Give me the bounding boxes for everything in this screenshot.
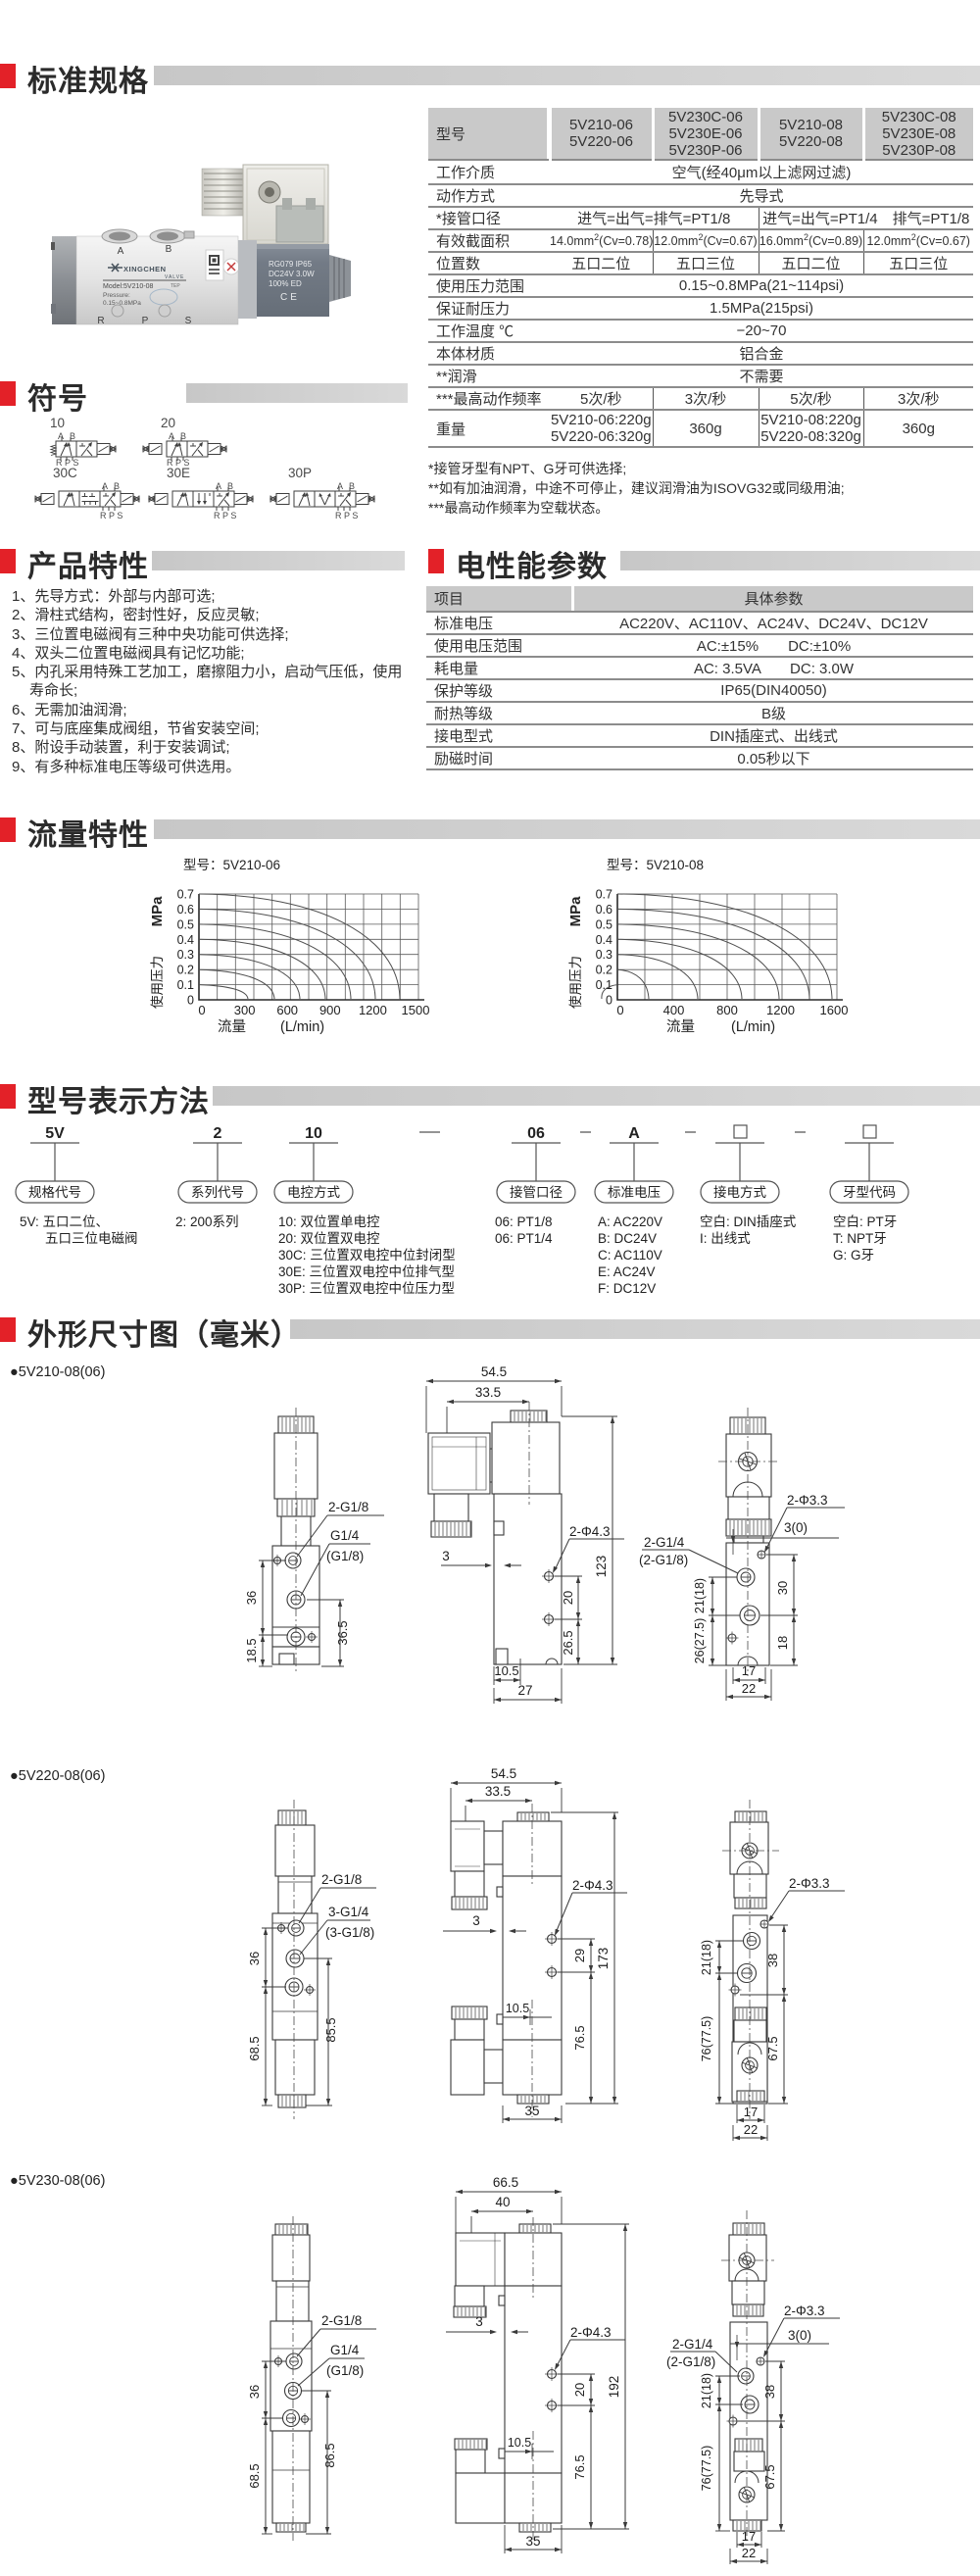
svg-text:22: 22	[742, 2546, 756, 2560]
svg-text:A: A	[58, 431, 64, 441]
svg-text:3: 3	[475, 2314, 483, 2329]
svg-text:1500: 1500	[402, 1003, 430, 1017]
svg-text:A: A	[216, 481, 221, 491]
svg-text:123: 123	[594, 1556, 609, 1578]
svg-text:300: 300	[234, 1003, 256, 1017]
svg-text:21(18): 21(18)	[693, 1578, 707, 1613]
svg-text:29: 29	[572, 1949, 587, 1962]
svg-text:规格代号: 规格代号	[28, 1185, 81, 1200]
svg-text:0: 0	[198, 1003, 205, 1017]
svg-text:400: 400	[663, 1003, 685, 1017]
svg-text:(2-G1/8): (2-G1/8)	[639, 1553, 688, 1567]
svg-text:0.5: 0.5	[177, 917, 194, 931]
svg-text:38: 38	[762, 2385, 777, 2399]
svg-text:R P S: R P S	[100, 511, 122, 520]
svg-text:0.2: 0.2	[177, 964, 194, 977]
svg-text:(L/min): (L/min)	[731, 1019, 775, 1035]
svg-text:33.5: 33.5	[475, 1385, 501, 1400]
svg-text:B: B	[166, 244, 172, 255]
svg-text:使用压力: 使用压力	[567, 956, 583, 1009]
svg-text:76(77.5): 76(77.5)	[700, 2016, 713, 2062]
svg-text:2-G1/4: 2-G1/4	[644, 1535, 685, 1550]
svg-text:10.5: 10.5	[494, 1663, 518, 1678]
svg-text:0.3: 0.3	[596, 948, 612, 962]
svg-text:0.6: 0.6	[177, 903, 194, 916]
svg-text:Pressure:: Pressure:	[103, 292, 130, 299]
svg-text:G1/4: G1/4	[330, 1528, 360, 1543]
svg-text:76.5: 76.5	[572, 2454, 587, 2479]
svg-text:22: 22	[742, 1681, 756, 1696]
svg-text:85.5: 85.5	[323, 2017, 338, 2042]
svg-text:0.4: 0.4	[596, 933, 612, 947]
svg-text:TEP: TEP	[171, 283, 180, 289]
svg-text:标准电压: 标准电压	[608, 1185, 661, 1200]
svg-text:17: 17	[742, 2529, 756, 2544]
svg-text:21(18): 21(18)	[700, 2373, 713, 2408]
svg-text:2-Φ3.3: 2-Φ3.3	[787, 1493, 828, 1508]
svg-text:1200: 1200	[766, 1003, 795, 1017]
svg-text:0.3: 0.3	[177, 948, 194, 962]
svg-text:36.5: 36.5	[335, 1620, 350, 1645]
svg-text:67.5: 67.5	[765, 2036, 780, 2060]
svg-text:P: P	[142, 316, 149, 326]
svg-text:G1/4: G1/4	[330, 2343, 360, 2357]
svg-text:5V: 5V	[45, 1125, 65, 1142]
svg-text:40: 40	[495, 2195, 510, 2209]
svg-text:33.5: 33.5	[485, 1784, 511, 1799]
svg-text:3-G1/4: 3-G1/4	[328, 1905, 369, 1919]
svg-text:800: 800	[716, 1003, 738, 1017]
svg-text:900: 900	[319, 1003, 341, 1017]
svg-text:20: 20	[561, 1591, 575, 1605]
svg-text:36: 36	[247, 1952, 262, 1965]
svg-text:0: 0	[187, 994, 194, 1008]
svg-text:192: 192	[607, 2376, 621, 2399]
svg-text:30C: 30C	[53, 466, 77, 480]
svg-text:10: 10	[305, 1125, 322, 1142]
svg-text:A: A	[337, 481, 343, 491]
svg-text:0: 0	[616, 1003, 623, 1017]
svg-text:系列代号: 系列代号	[191, 1185, 244, 1200]
svg-text:36: 36	[244, 1591, 259, 1605]
svg-text:17: 17	[744, 2105, 758, 2119]
svg-text:26(27.5): 26(27.5)	[693, 1618, 707, 1664]
svg-text:0.2: 0.2	[596, 964, 612, 977]
svg-text:牙型代码: 牙型代码	[843, 1185, 896, 1200]
svg-text:0.5: 0.5	[596, 917, 612, 931]
svg-text:76.5: 76.5	[572, 2025, 587, 2050]
svg-text:0.7: 0.7	[177, 888, 194, 902]
svg-text:54.5: 54.5	[481, 1364, 507, 1379]
svg-text:2-G1/8: 2-G1/8	[321, 1872, 362, 1887]
svg-text:R P S: R P S	[214, 511, 236, 520]
svg-text:68.5: 68.5	[247, 2463, 262, 2488]
svg-text:型号：5V210-08: 型号：5V210-08	[607, 858, 704, 872]
svg-text:20: 20	[572, 2383, 587, 2397]
svg-text:0.7: 0.7	[596, 888, 612, 902]
svg-text:68.5: 68.5	[247, 2036, 262, 2060]
svg-text:3: 3	[472, 1913, 480, 1928]
svg-text:电控方式: 电控方式	[287, 1185, 340, 1200]
svg-text:(G1/8): (G1/8)	[326, 2363, 364, 2378]
svg-text:18.5: 18.5	[244, 1638, 259, 1662]
svg-text:27: 27	[517, 1683, 532, 1698]
svg-text:接管口径: 接管口径	[510, 1184, 563, 1200]
svg-text:2-Φ4.3: 2-Φ4.3	[569, 1524, 611, 1539]
svg-text:36: 36	[247, 2385, 262, 2399]
svg-text:18: 18	[775, 1636, 790, 1650]
svg-text:CE: CE	[280, 292, 300, 303]
svg-text:30P: 30P	[288, 466, 312, 480]
svg-text:10: 10	[50, 416, 65, 430]
svg-text:(2-G1/8): (2-G1/8)	[666, 2354, 715, 2369]
svg-text:0.6: 0.6	[596, 903, 612, 916]
svg-text:XINGCHEN: XINGCHEN	[123, 265, 167, 273]
svg-text:30: 30	[775, 1581, 790, 1595]
svg-text:17: 17	[742, 1663, 756, 1678]
svg-text:54.5: 54.5	[491, 1766, 516, 1781]
svg-text:3: 3	[442, 1549, 450, 1563]
svg-text:MPa: MPa	[567, 896, 584, 927]
svg-text:600: 600	[276, 1003, 298, 1017]
svg-text:100% ED: 100% ED	[269, 279, 302, 288]
svg-text:MPa: MPa	[149, 896, 166, 927]
svg-text:2-Φ3.3: 2-Φ3.3	[789, 1876, 830, 1891]
svg-text:流量: 流量	[218, 1018, 246, 1035]
svg-text:接电方式: 接电方式	[713, 1184, 766, 1200]
svg-text:A: A	[169, 431, 174, 441]
svg-text:A: A	[102, 481, 108, 491]
svg-text:2-G1/8: 2-G1/8	[328, 1500, 368, 1514]
svg-text:173: 173	[596, 1948, 611, 1970]
svg-text:2-G1/8: 2-G1/8	[321, 2313, 362, 2328]
svg-text:66.5: 66.5	[493, 2176, 518, 2190]
svg-text:R P S: R P S	[335, 511, 358, 520]
svg-text:20: 20	[161, 416, 175, 430]
svg-text:10.5: 10.5	[506, 2002, 529, 2015]
svg-text:S: S	[185, 316, 192, 326]
svg-text:10.5: 10.5	[508, 2436, 531, 2450]
svg-text:26.5: 26.5	[561, 1630, 575, 1655]
svg-text:VALVE: VALVE	[165, 274, 184, 280]
svg-text:RG079 IP65: RG079 IP65	[269, 260, 313, 269]
svg-text:DC24V 3.0W: DC24V 3.0W	[269, 270, 315, 278]
svg-text:(G1/8): (G1/8)	[326, 1549, 364, 1563]
svg-text:3(0): 3(0)	[784, 1520, 808, 1535]
svg-text:R: R	[97, 316, 104, 326]
svg-text:Model:5V210-08: Model:5V210-08	[103, 283, 153, 290]
svg-text:型号：5V210-06: 型号：5V210-06	[183, 858, 280, 872]
svg-text:0.15~0.8MPa: 0.15~0.8MPa	[103, 300, 141, 307]
svg-text:86.5: 86.5	[322, 2443, 337, 2467]
svg-text:2-Φ3.3: 2-Φ3.3	[784, 2304, 825, 2318]
svg-text:21(18): 21(18)	[700, 1940, 713, 1975]
svg-text:76(77.5): 76(77.5)	[700, 2446, 713, 2492]
svg-text:0.1: 0.1	[177, 978, 194, 992]
svg-text:2-G1/4: 2-G1/4	[672, 2337, 713, 2352]
svg-text:06: 06	[527, 1125, 545, 1142]
svg-text:2-Φ4.3: 2-Φ4.3	[570, 2325, 612, 2340]
svg-text:(3-G1/8): (3-G1/8)	[325, 1925, 374, 1940]
svg-text:2: 2	[214, 1125, 222, 1142]
svg-text:38: 38	[765, 1954, 780, 1967]
svg-text:67.5: 67.5	[762, 2464, 777, 2489]
svg-text:A: A	[118, 246, 124, 257]
svg-text:0.4: 0.4	[177, 933, 194, 947]
svg-text:(L/min): (L/min)	[280, 1019, 324, 1035]
svg-text:30E: 30E	[167, 466, 190, 480]
svg-text:1600: 1600	[820, 1003, 849, 1017]
svg-text:3(0): 3(0)	[788, 2328, 811, 2343]
svg-text:22: 22	[744, 2122, 758, 2137]
svg-text:A: A	[628, 1125, 640, 1142]
svg-text:使用压力: 使用压力	[149, 956, 165, 1009]
svg-text:1200: 1200	[359, 1003, 387, 1017]
svg-text:流量: 流量	[666, 1018, 695, 1035]
svg-text:0: 0	[606, 994, 612, 1008]
svg-text:2-Φ4.3: 2-Φ4.3	[572, 1878, 613, 1893]
